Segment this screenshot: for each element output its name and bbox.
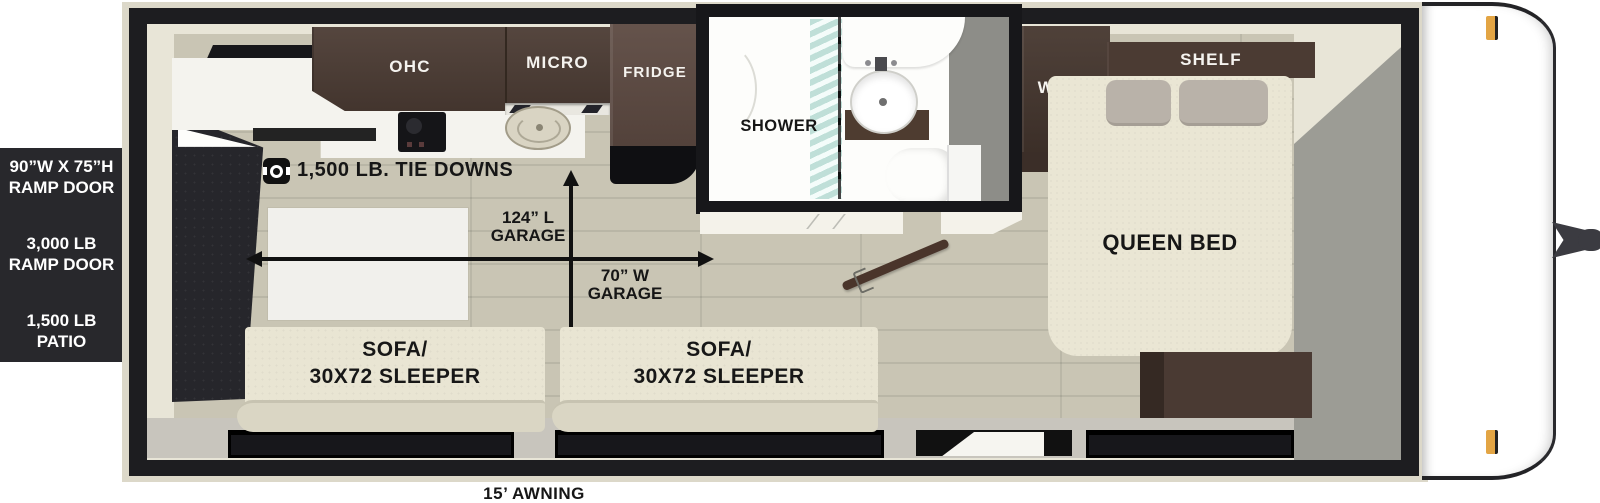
hitch-coupler bbox=[1578, 229, 1600, 251]
garage-length-line2: GARAGE bbox=[465, 227, 591, 245]
toilet-tank bbox=[947, 145, 981, 201]
window bbox=[228, 430, 514, 458]
foot-cabinet-side bbox=[1140, 352, 1164, 418]
bathroom-sink bbox=[850, 70, 918, 134]
queen-bed-label: QUEEN BED bbox=[1048, 230, 1292, 256]
sofa-label-line1: SOFA/ bbox=[560, 336, 878, 363]
bathroom-doorway bbox=[903, 212, 941, 234]
garage-width-line1: 70” W bbox=[562, 267, 688, 285]
sofa-label-line2: 30X72 SLEEPER bbox=[245, 363, 545, 390]
ramp-weight-line1: 3,000 LB bbox=[0, 233, 123, 254]
ramp-weight-label: 3,000 LB RAMP DOOR bbox=[0, 233, 123, 275]
tie-down-slit bbox=[286, 167, 290, 175]
shower-label: SHOWER bbox=[731, 117, 827, 136]
micro-label: MICRO bbox=[505, 53, 610, 73]
toilet bbox=[885, 148, 955, 201]
sofa-seat bbox=[552, 400, 878, 432]
pillow bbox=[1106, 80, 1171, 126]
garage-length-line1: 124” L bbox=[465, 209, 591, 227]
cooktop bbox=[398, 112, 446, 152]
vanity-counter bbox=[843, 17, 965, 67]
tie-downs-label: 1,500 LB. TIE DOWNS bbox=[297, 159, 513, 182]
sofa-seat bbox=[237, 400, 545, 432]
garage-mat bbox=[268, 208, 468, 320]
ramp-size-label: 90”W X 75”H RAMP DOOR bbox=[0, 156, 123, 198]
front-cap bbox=[1422, 2, 1556, 480]
tie-down-anchor-icon bbox=[263, 158, 290, 184]
sofa-label-line2: 30X72 SLEEPER bbox=[560, 363, 878, 390]
garage-length-label: 124” L GARAGE bbox=[465, 209, 591, 245]
fridge-base-shadow bbox=[610, 146, 700, 184]
kitchen-sink bbox=[505, 106, 571, 150]
window bbox=[555, 430, 884, 458]
ohc-label: OHC bbox=[330, 57, 490, 77]
floorplan-canvas: 90”W X 75”H RAMP DOOR 3,000 LB RAMP DOOR… bbox=[0, 0, 1600, 503]
patio-line1: 1,500 LB bbox=[0, 310, 123, 331]
garage-width-line2: GARAGE bbox=[562, 285, 688, 303]
ramp-size-line2: RAMP DOOR bbox=[0, 177, 123, 198]
ramp-door-info-panel: 90”W X 75”H RAMP DOOR 3,000 LB RAMP DOOR… bbox=[0, 148, 123, 362]
fridge-cabinet bbox=[610, 24, 700, 154]
sofa-label: SOFA/ 30X72 SLEEPER bbox=[245, 336, 545, 390]
foot-cabinet bbox=[1140, 352, 1312, 418]
ramp-weight-line2: RAMP DOOR bbox=[0, 254, 123, 275]
bathroom-interior: SHOWER bbox=[709, 17, 1009, 201]
marker-light-icon bbox=[1486, 430, 1498, 454]
arrow-up-icon bbox=[563, 170, 579, 186]
sofa-label-line1: SOFA/ bbox=[245, 336, 545, 363]
fridge-label: FRIDGE bbox=[610, 64, 700, 81]
counter-edge bbox=[253, 128, 376, 141]
bathroom: SHOWER bbox=[696, 4, 1022, 214]
shelf-label: SHELF bbox=[1107, 50, 1315, 70]
garage-width-arrow-line bbox=[260, 257, 700, 261]
window bbox=[1086, 430, 1294, 458]
patio-line2: PATIO bbox=[0, 331, 123, 352]
awning-label: 15’ AWNING bbox=[434, 484, 634, 503]
sofa-label: SOFA/ 30X72 SLEEPER bbox=[560, 336, 878, 390]
arrow-left-icon bbox=[246, 251, 262, 267]
garage-width-label: 70” W GARAGE bbox=[562, 267, 688, 303]
tie-down-slit bbox=[263, 167, 267, 175]
tie-down-ring bbox=[270, 165, 283, 178]
pillow bbox=[1179, 80, 1268, 126]
faucet-icon bbox=[875, 57, 887, 71]
bathroom-exterior-band bbox=[700, 212, 1022, 234]
ramp-size-line1: 90”W X 75”H bbox=[0, 156, 123, 177]
arrow-right-icon bbox=[698, 251, 714, 267]
marker-light-icon bbox=[1486, 16, 1498, 40]
shower-door-track bbox=[838, 17, 841, 199]
patio-label: 1,500 LB PATIO bbox=[0, 310, 123, 352]
